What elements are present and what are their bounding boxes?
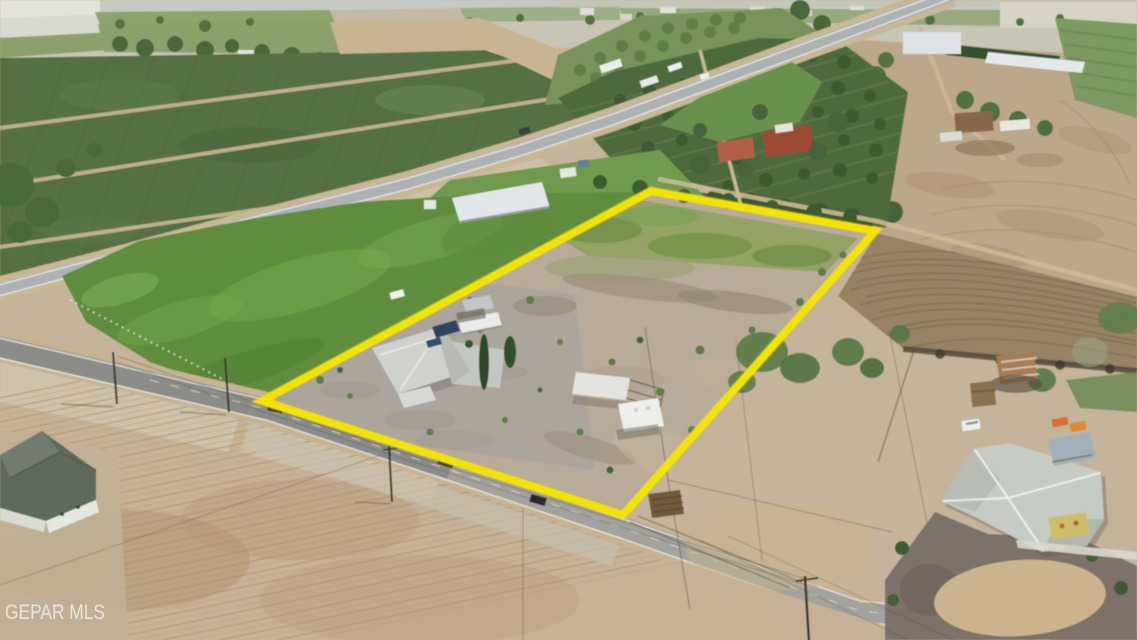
svg-text:GEPAR MLS: GEPAR MLS	[5, 601, 105, 624]
